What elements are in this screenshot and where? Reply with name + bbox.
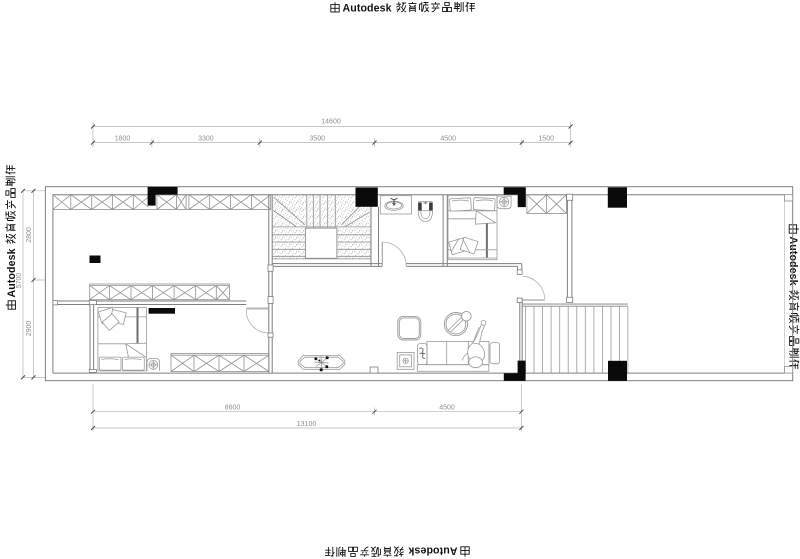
svg-text:14600: 14600	[321, 118, 341, 125]
svg-text:4500: 4500	[440, 135, 456, 142]
svg-text:1500: 1500	[538, 135, 554, 142]
svg-text:5700: 5700	[16, 273, 23, 289]
svg-text:13100: 13100	[297, 421, 317, 428]
svg-text:8600: 8600	[225, 405, 241, 412]
svg-text:1800: 1800	[115, 135, 131, 142]
svg-text:3500: 3500	[309, 135, 325, 142]
svg-text:2800: 2800	[26, 227, 33, 243]
svg-text:3300: 3300	[198, 135, 214, 142]
svg-text:4500: 4500	[439, 405, 455, 412]
svg-text:2900: 2900	[26, 321, 33, 337]
